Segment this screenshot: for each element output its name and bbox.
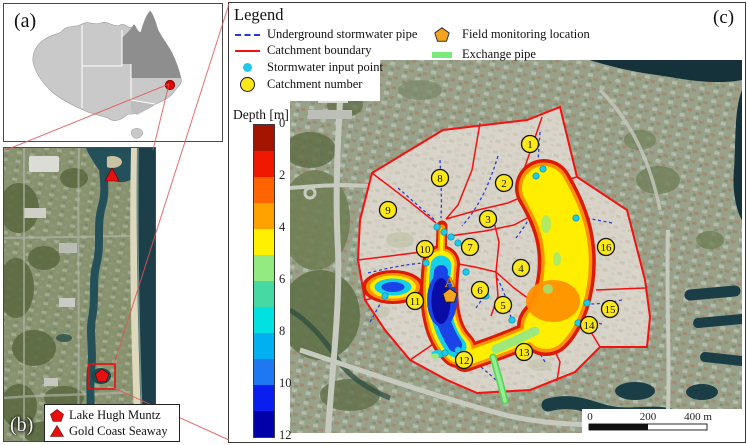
stormwater-input-point [434, 224, 440, 230]
panel-bathymetry-map: 12345678910111213141516 A 0 200 400 m [228, 2, 746, 443]
legend-row-pipe: Underground stormwater pipe [234, 27, 417, 42]
legend-row-monitoring: Field monitoring location [429, 27, 590, 42]
catchment-number-15: 15 [602, 301, 619, 318]
stormwater-input-point [463, 269, 469, 275]
legend-row-boundary: Catchment boundary [234, 43, 372, 58]
legend-label: Underground stormwater pipe [267, 27, 417, 42]
scale-400: 400 m [684, 411, 712, 423]
stormwater-input-point [573, 215, 579, 221]
catchment-number-9: 9 [380, 202, 397, 219]
catchment-number-7: 7 [462, 239, 479, 256]
exchange-pipe-icon [432, 52, 452, 58]
legend-row-lake: Lake Hugh Muntz [50, 407, 174, 423]
australia-map [4, 4, 222, 141]
map-legend: Legend Underground stormwater pipe Catch… [233, 3, 593, 99]
stormwater-input-point [423, 260, 429, 266]
svg-text:1: 1 [527, 139, 533, 151]
stormwater-input-point [540, 166, 546, 172]
colorbar-ticks: 024681012 [279, 124, 303, 436]
colorbar-segment [254, 255, 274, 281]
scale-0: 0 [587, 411, 593, 423]
colorbar-segment [254, 281, 274, 307]
legend-label: Stormwater input point [267, 60, 383, 75]
legend-label-lake: Lake Hugh Muntz [69, 407, 161, 423]
dashed-pipe-icon [235, 34, 260, 36]
stormwater-input-point [382, 293, 388, 299]
panel-goldcoast-map: (b) Lake Hugh Muntz Gold Coast Seaway [3, 147, 156, 442]
svg-text:5: 5 [500, 300, 506, 312]
legend-row-seaway: Gold Coast Seaway [50, 423, 174, 439]
legend-label: Catchment number [267, 77, 362, 92]
svg-text:2: 2 [501, 178, 507, 190]
svg-text:8: 8 [437, 173, 443, 185]
svg-text:16: 16 [601, 242, 613, 254]
svg-text:12: 12 [459, 355, 470, 367]
stormwater-input-point [584, 300, 590, 306]
scale-200: 200 [640, 411, 657, 423]
colorbar-tick-label: 12 [279, 428, 292, 443]
catchment-number-13: 13 [516, 344, 533, 361]
stormwater-input-point [455, 240, 461, 246]
colorbar-segment [254, 125, 274, 151]
legend-label: Field monitoring location [462, 27, 590, 42]
colorbar-tick-label: 2 [279, 168, 285, 183]
catchment-number-1: 1 [522, 136, 539, 153]
catchment-number-6: 6 [472, 282, 489, 299]
colorbar-segment [254, 385, 274, 411]
svg-text:15: 15 [605, 304, 617, 316]
panel-b-letter: (b) [10, 414, 33, 437]
svg-text:4: 4 [518, 263, 524, 275]
svg-text:10: 10 [420, 244, 432, 256]
panel-c-letter: (c) [713, 7, 734, 29]
catchment-number-12: 12 [456, 352, 473, 369]
stormwater-input-point [509, 317, 515, 323]
svg-text:3: 3 [485, 214, 491, 226]
stormwater-input-point [533, 173, 539, 179]
catchment-number-11: 11 [407, 293, 424, 310]
panel-australia-map: (a) [3, 3, 223, 142]
pentagon-icon [434, 27, 450, 42]
catchment-number-8: 8 [432, 170, 449, 187]
colorbar-tick-label: 10 [279, 376, 292, 391]
colorbar-segment [254, 177, 274, 203]
colorbar-gradient [253, 124, 275, 438]
colorbar-tick-label: 0 [279, 116, 285, 131]
svg-text:6: 6 [477, 285, 483, 297]
colorbar-segment [254, 151, 274, 177]
stormwater-input-point [442, 350, 448, 356]
study-site-dot [165, 80, 174, 89]
legend-row-input-point: Stormwater input point [234, 60, 383, 75]
catchment-number-4: 4 [513, 260, 530, 277]
legend-label: Catchment boundary [267, 43, 372, 58]
boundary-line-icon [235, 50, 260, 52]
field-monitoring-site: A [443, 275, 457, 302]
tasmania-island [131, 128, 143, 138]
colorbar-segment [254, 229, 274, 255]
svg-text:13: 13 [519, 347, 531, 359]
svg-text:11: 11 [410, 296, 421, 308]
colorbar-segment [254, 333, 274, 359]
colorbar-tick-label: 8 [279, 324, 285, 339]
colorbar-segment [254, 359, 274, 385]
catchment-number-10: 10 [417, 241, 434, 258]
colorbar-segment [254, 307, 274, 333]
legend-label-seaway: Gold Coast Seaway [69, 423, 168, 439]
svg-text:14: 14 [584, 320, 596, 332]
legend-label: Exchange pipe [462, 47, 536, 62]
legend-row-exchange-pipe: Exchange pipe [429, 47, 536, 62]
panel-a-letter: (a) [14, 10, 36, 33]
input-point-icon [243, 63, 252, 72]
colorbar-tick-label: 6 [279, 272, 285, 287]
colorbar-segment [254, 203, 274, 229]
legend-row-catchment-number: Catchment number [234, 77, 362, 92]
triangle-icon [50, 425, 64, 437]
svg-text:9: 9 [385, 205, 391, 217]
catchment-number-14: 14 [581, 317, 598, 334]
colorbar-segment [254, 411, 274, 437]
svg-text:7: 7 [467, 242, 473, 254]
goldcoast-satellite [4, 148, 155, 441]
locator-legend: Lake Hugh Muntz Gold Coast Seaway [44, 404, 180, 442]
figure: (a) [0, 0, 747, 445]
bathymetry-satellite-map: 12345678910111213141516 A 0 200 400 m [290, 60, 742, 433]
catchment-number-16: 16 [598, 239, 615, 256]
legend-title: Legend [234, 5, 283, 25]
pond [56, 334, 72, 342]
catchment-number-5: 5 [495, 297, 512, 314]
scale-bar: 0 200 400 m [582, 409, 742, 433]
pentagon-icon [50, 409, 64, 422]
depth-colorbar: Depth [m] 024681012 [232, 107, 304, 443]
catchment-number-3: 3 [480, 211, 497, 228]
colorbar-tick-label: 4 [279, 220, 285, 235]
catchment-number-icon [240, 77, 255, 92]
catchment-number-2: 2 [496, 175, 513, 192]
stormwater-input-point [441, 229, 447, 235]
stormwater-input-point [448, 234, 454, 240]
